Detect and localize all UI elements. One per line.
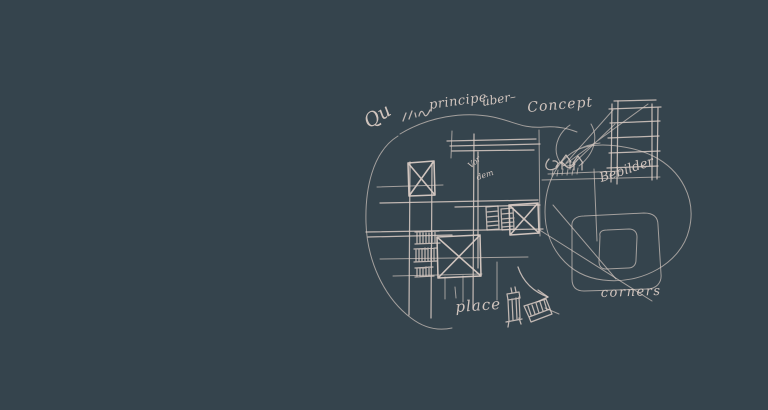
crossed-box-top-left bbox=[408, 161, 435, 196]
tower-perspective-diagonals bbox=[563, 104, 648, 166]
rounded-square-outer bbox=[572, 213, 661, 291]
crossed-box-bottom bbox=[437, 235, 481, 278]
arrow-curve bbox=[518, 267, 548, 297]
hatched-cell-left bbox=[486, 206, 499, 230]
lantern-box bbox=[506, 287, 522, 327]
plan-bottom-horizontal-1 bbox=[380, 257, 528, 259]
tilted-hatched-box bbox=[524, 299, 552, 322]
tower-rungs bbox=[607, 100, 661, 168]
plan-mid-horizontals bbox=[380, 200, 540, 207]
plan-sketch bbox=[366, 130, 543, 318]
blob-top-wave bbox=[400, 115, 577, 134]
small-3d-boxes bbox=[506, 287, 552, 327]
circle-chord bbox=[594, 169, 597, 241]
qu-scribble-ticks bbox=[403, 110, 430, 121]
annotation-corners: corners bbox=[601, 285, 662, 300]
hatched-cell-right bbox=[501, 208, 514, 230]
plan-top-vertical-tick bbox=[451, 131, 452, 158]
rounded-square-inner bbox=[599, 229, 637, 269]
plan-top-horizontals bbox=[447, 139, 540, 151]
sketch-canvas: Qu principe über– Concept Vor dem Bebild… bbox=[0, 0, 768, 410]
hatched-strip-2 bbox=[414, 248, 437, 262]
sketch-drawing bbox=[0, 0, 768, 410]
annotation-place: place bbox=[455, 297, 502, 315]
